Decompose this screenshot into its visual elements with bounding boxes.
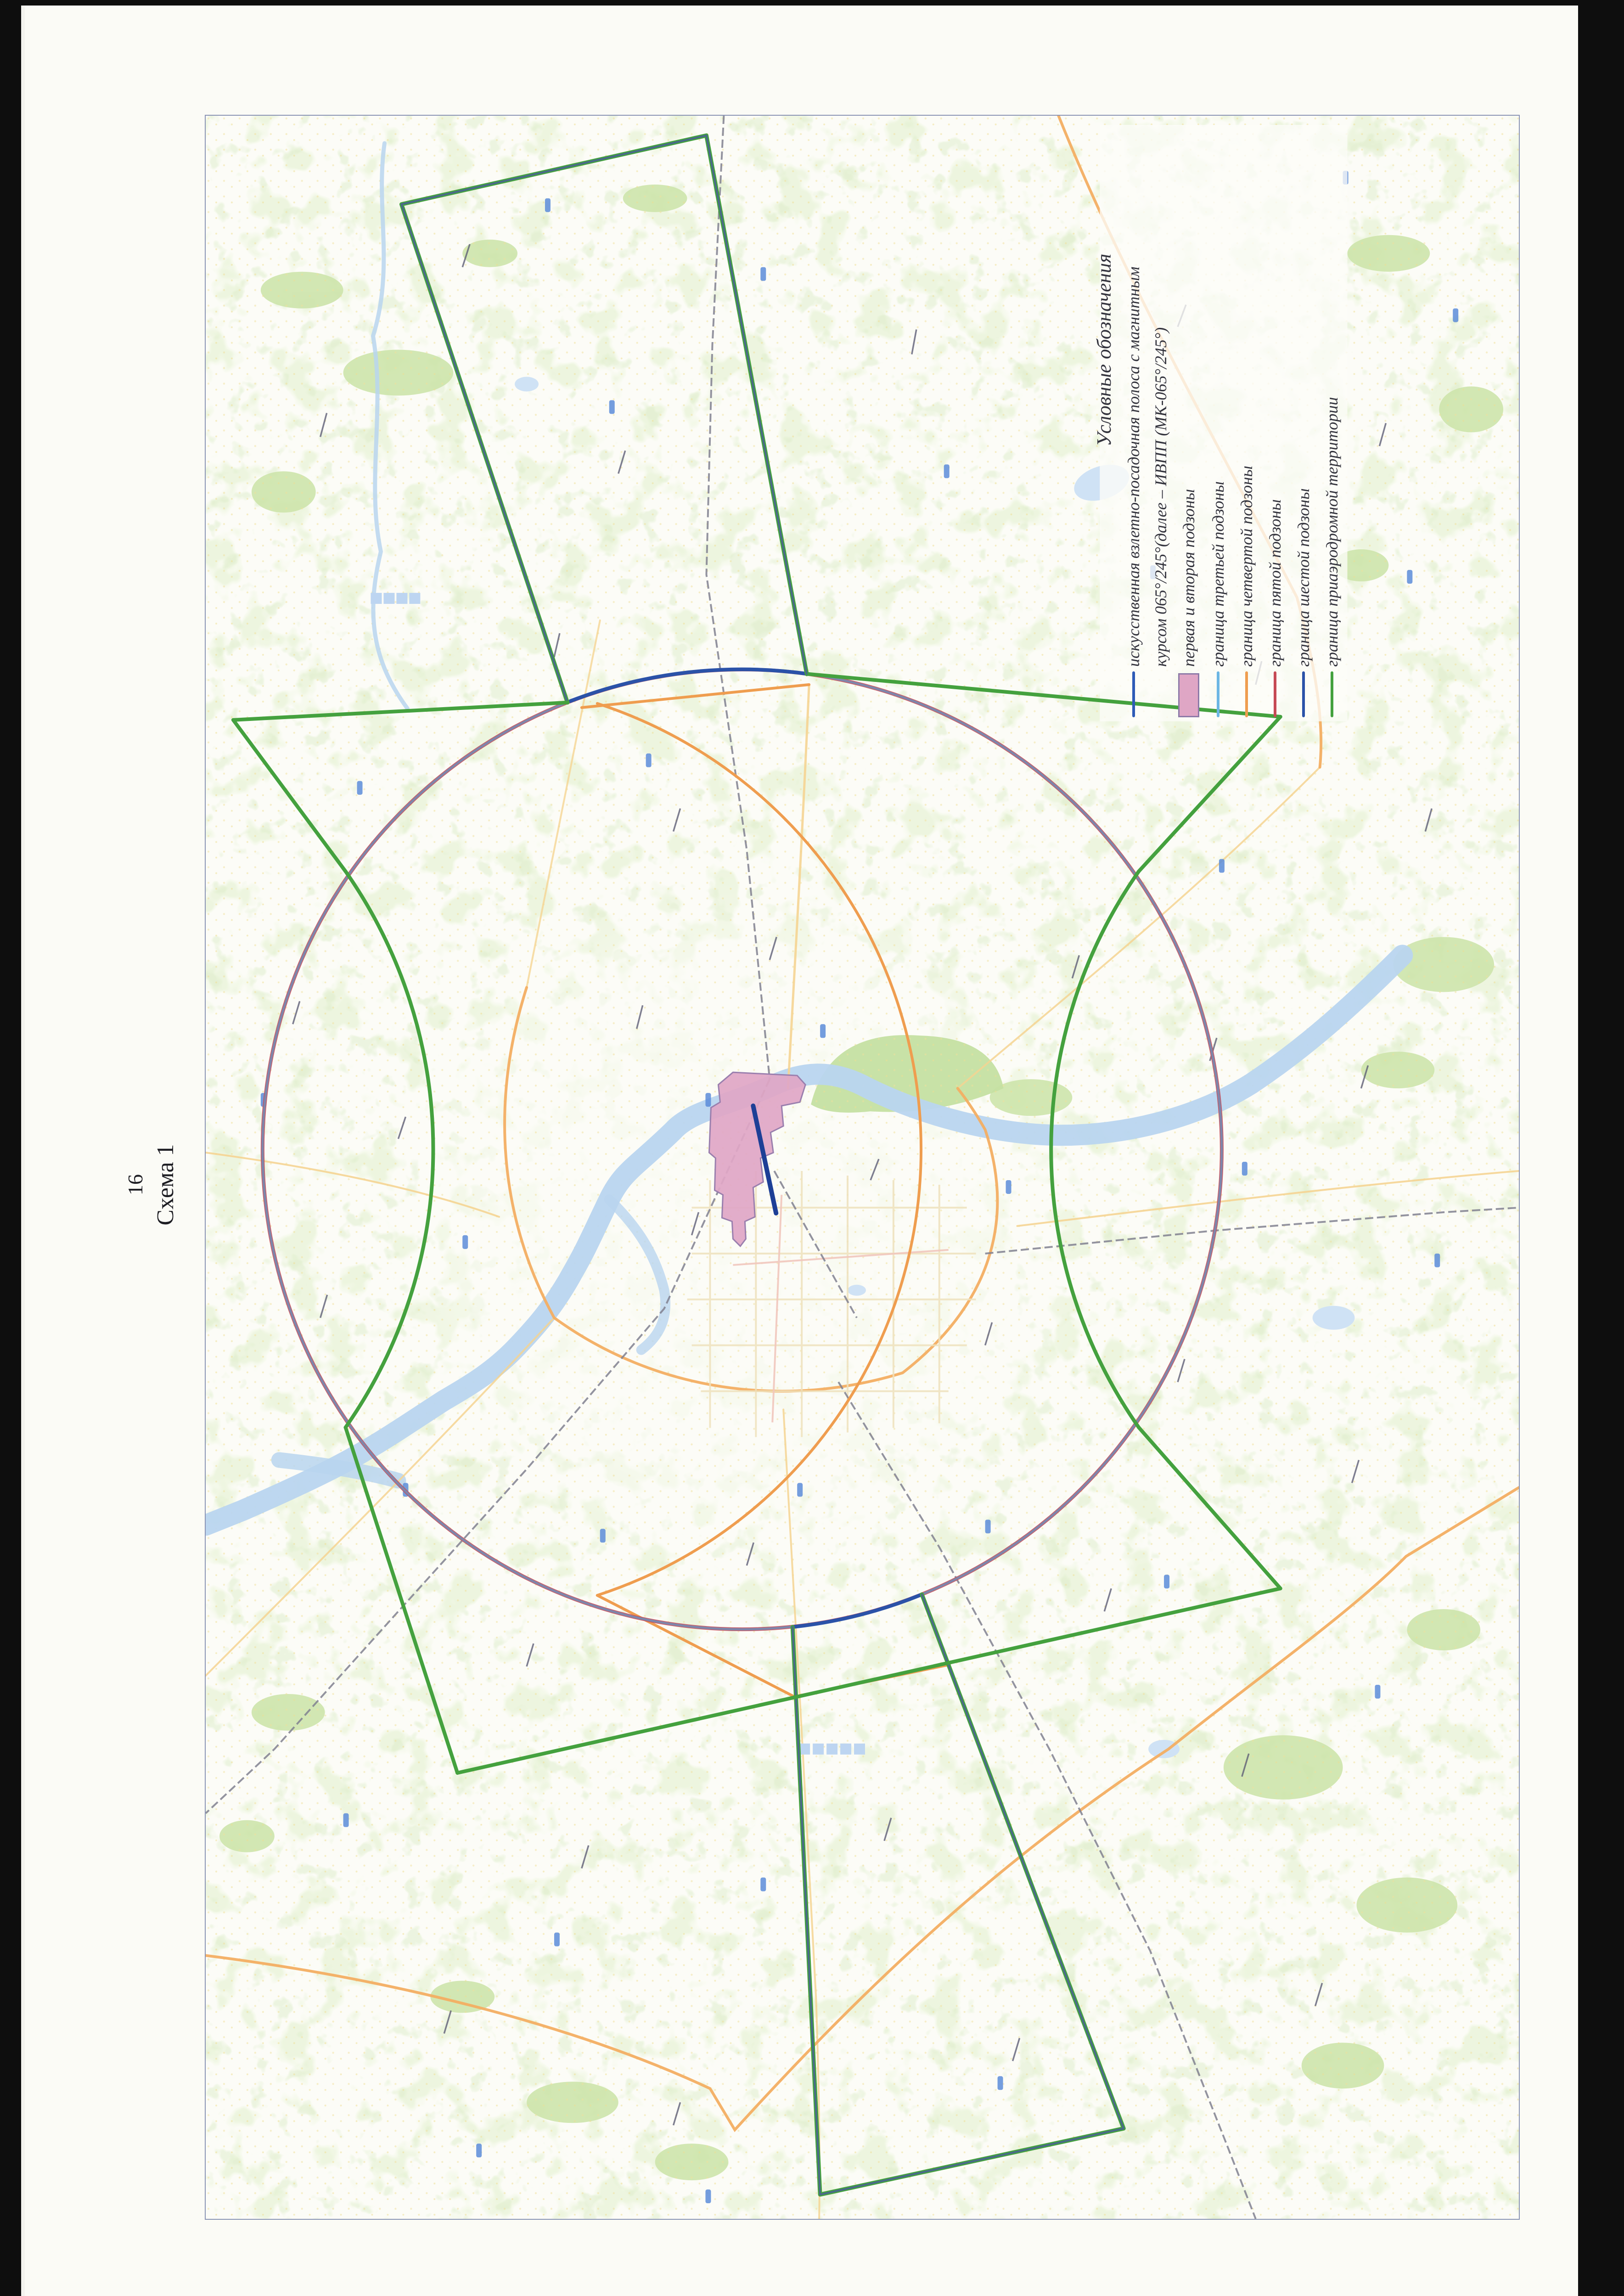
page-label: 16 Схема 1 [106,1102,197,1267]
legend-entry-zone6: граница шестой подзоны [1289,125,1318,717]
legend-entry-runway: искусственная взлетно-посадочная полоса … [1119,125,1148,717]
legend-entry-zone12: первая и вторая подзоны [1174,125,1204,717]
scanned-page: 16 Схема 1 [0,0,1624,2296]
scan-edge [21,6,25,2296]
zone-4-line-icon [1245,671,1248,717]
legend-entry-territory: граница приаэродромной территории [1318,125,1346,717]
legend-entry-zone4: граница четвертой подзоны [1232,125,1261,717]
legend-title: Условные обозначения [1089,125,1119,446]
zone-6-line-icon [1302,671,1305,717]
legend-entry-zone5: граница пятой подзоны [1261,125,1289,717]
map-frame: Условные обозначения искусственная взлет… [205,115,1520,2220]
runway-line-icon [1132,671,1135,717]
territory-line-icon [1331,671,1333,717]
zone-1-2-area-icon [1178,673,1199,717]
zone-5-line-icon [1274,671,1276,717]
legend-entry-runway-line2: курсом 065°/245°(далее – ИВПП (МК-065°/2… [1148,125,1174,717]
legend: Условные обозначения искусственная взлет… [1089,125,1365,717]
zone-3-line-icon [1217,671,1219,717]
schema-title: Схема 1 [150,1144,182,1225]
page-number: 16 [121,1174,150,1195]
legend-entry-zone3: граница третьей подзоны [1204,125,1232,717]
